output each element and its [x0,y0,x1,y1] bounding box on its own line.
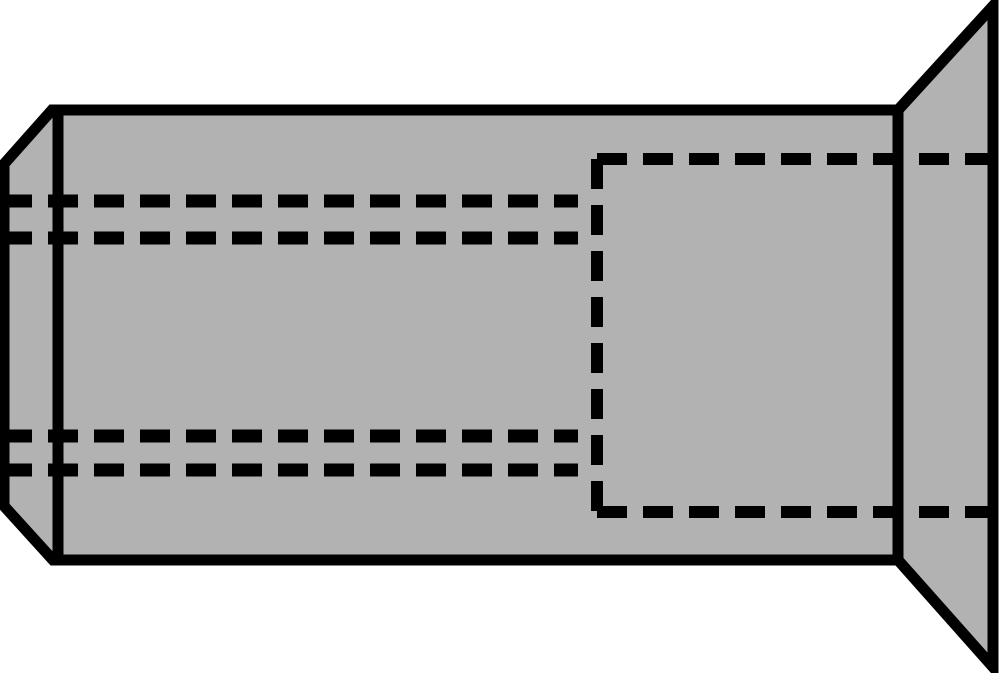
countersunk-head-outline [898,6,993,667]
drawing-canvas [0,0,1000,673]
rivet-nut-technical-drawing [0,0,1000,673]
rivet-body-outline [4,110,898,560]
